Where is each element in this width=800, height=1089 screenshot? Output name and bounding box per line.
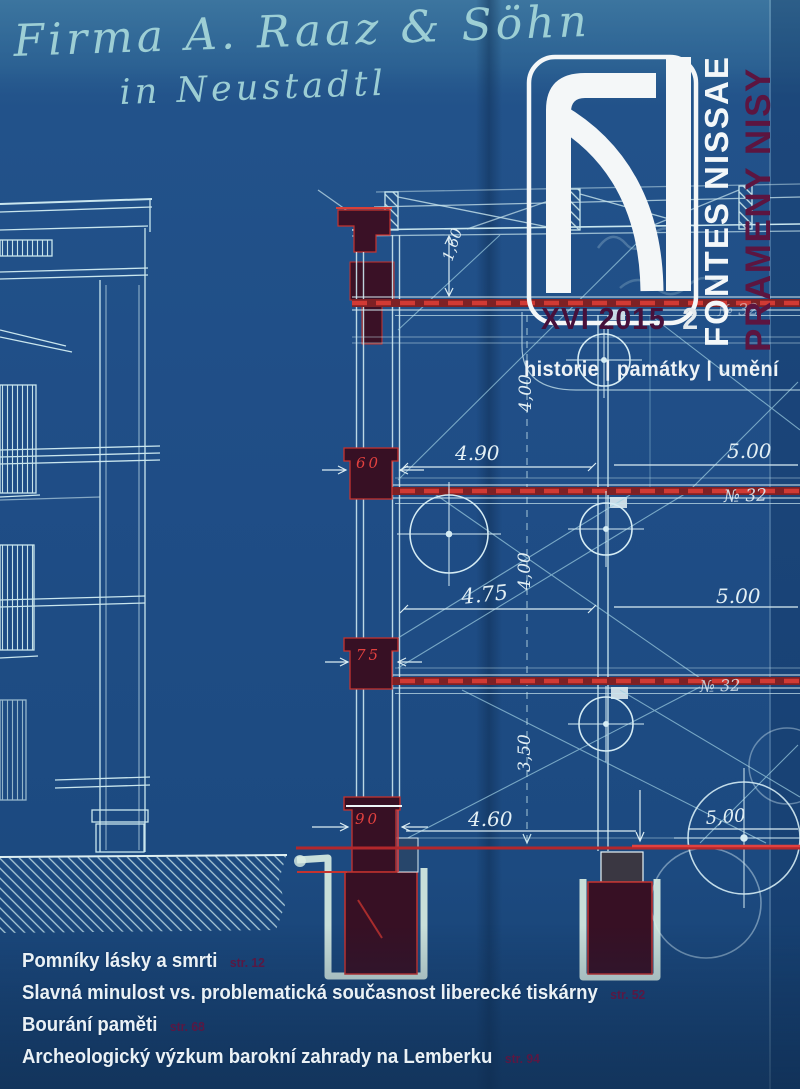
table-of-contents: Pomníky lásky a smrti str. 12 Slavná min… bbox=[22, 950, 692, 1078]
dim-4-75: 4.75 bbox=[459, 580, 509, 609]
block-label-75: 75 bbox=[356, 646, 381, 664]
toc-item-page: str. 52 bbox=[610, 987, 645, 1002]
tagline: historie | památky | umění bbox=[524, 358, 779, 382]
toc-item-title: Archeologický výzkum barokní zahrady na … bbox=[22, 1046, 492, 1068]
issue-volume: XVI 2015 bbox=[541, 301, 666, 336]
issue-line: XVI 20152 bbox=[541, 301, 699, 337]
toc-item: Slavná minulost vs. problematická součas… bbox=[22, 982, 645, 1014]
dim-5-00-mid: 5.00 bbox=[716, 584, 761, 608]
toc-item-title: Slavná minulost vs. problematická součas… bbox=[22, 982, 598, 1004]
journal-subtitle: PRAMENY NISY bbox=[741, 67, 776, 352]
dim-5-00-bottom: 5,00 bbox=[705, 805, 746, 829]
dim-4-00-lower: 4,00 bbox=[515, 552, 535, 591]
dim-3-50: 3,50 bbox=[515, 734, 535, 772]
issue-number: 2 bbox=[682, 301, 699, 336]
ground-hatch bbox=[0, 856, 286, 933]
journal-title: FONTES NISSAE bbox=[700, 55, 733, 347]
beam-label-no32-mid: № 32 bbox=[722, 486, 767, 508]
dim-5-00-top: 5.00 bbox=[727, 439, 772, 463]
block-label-90: 90 bbox=[355, 810, 380, 828]
magazine-cover: Firma A. Raaz & Söhn in Neustadtl bbox=[0, 0, 800, 1089]
beam-label-no32-low: № 32 bbox=[698, 676, 740, 696]
toc-item: Archeologický výzkum barokní zahrady na … bbox=[22, 1046, 645, 1078]
blueprint-background: Firma A. Raaz & Söhn in Neustadtl bbox=[0, 0, 800, 1089]
block-label-60: 60 bbox=[356, 454, 381, 472]
toc-item: Pomníky lásky a smrti str. 12 bbox=[22, 950, 645, 982]
toc-item-page: str. 12 bbox=[230, 955, 265, 970]
toc-item-page: str. 94 bbox=[505, 1051, 540, 1066]
toc-item-title: Bourání paměti bbox=[22, 1014, 157, 1036]
toc-item-title: Pomníky lásky a smrti bbox=[22, 950, 217, 972]
dim-4-60: 4.60 bbox=[467, 807, 513, 831]
dim-4-90: 4.90 bbox=[454, 441, 500, 465]
toc-item: Bourání paměti str. 68 bbox=[22, 1014, 645, 1046]
toc-item-page: str. 68 bbox=[170, 1019, 205, 1034]
